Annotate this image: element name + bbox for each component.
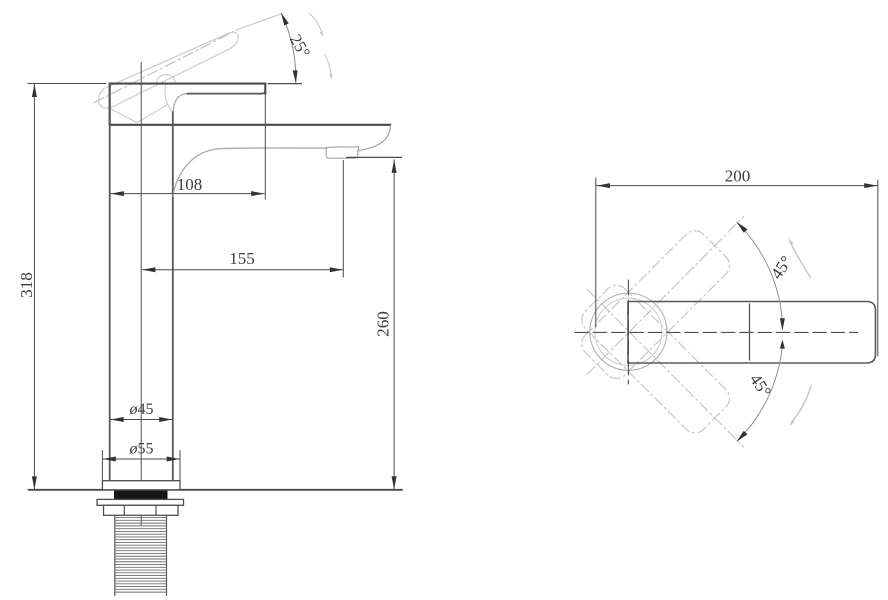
svg-text:ø45: ø45	[129, 401, 154, 418]
svg-text:108: 108	[177, 175, 203, 194]
svg-text:260: 260	[373, 311, 392, 337]
svg-text:155: 155	[229, 249, 255, 268]
svg-text:318: 318	[17, 272, 36, 298]
svg-text:200: 200	[725, 167, 751, 186]
svg-text:ø55: ø55	[129, 440, 154, 457]
